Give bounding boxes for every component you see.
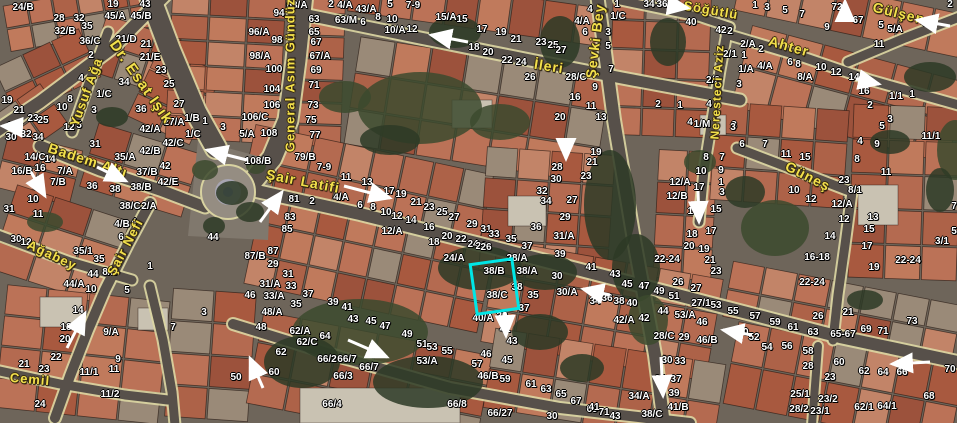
address-label: 2 — [727, 27, 733, 37]
address-label: 19 — [698, 245, 709, 255]
address-label: 59 — [769, 318, 780, 328]
address-label: 71 — [308, 81, 319, 91]
address-label: 30 — [661, 356, 672, 366]
address-label: 3 — [201, 308, 207, 318]
address-label: 33/A — [263, 292, 284, 302]
address-label: 31 — [3, 205, 14, 215]
address-label: 12/A — [669, 178, 690, 188]
address-label: 3 — [220, 123, 226, 133]
address-label: 67 — [570, 397, 581, 407]
address-label: 25 — [163, 80, 174, 90]
address-label: 17 — [705, 227, 716, 237]
address-label: 21 — [510, 35, 521, 45]
address-label: 70 — [944, 365, 955, 375]
address-label: 7 — [170, 323, 176, 333]
address-label: 14 — [72, 306, 83, 316]
address-label: 68 — [923, 392, 934, 402]
address-label: 21 — [410, 198, 421, 208]
address-label: 53 — [710, 301, 721, 311]
address-label: 4/A — [757, 62, 773, 72]
street-name-label: Cemil — [9, 371, 50, 387]
address-label: 20 — [59, 335, 70, 345]
address-label: 26 — [480, 243, 491, 253]
address-label: 64 — [319, 332, 330, 342]
address-label: 10/A — [384, 26, 405, 36]
address-label: 29 — [559, 213, 570, 223]
address-label: 29 — [466, 220, 477, 230]
address-label: 23/2 — [818, 395, 837, 405]
address-label: 24 — [515, 58, 526, 68]
address-label: 65-67 — [830, 330, 856, 340]
address-label: 12/A — [831, 200, 852, 210]
address-label: 17 — [476, 25, 487, 35]
address-label: 28 — [53, 14, 64, 24]
address-label: 35 — [527, 291, 538, 301]
address-label: 19 — [395, 190, 406, 200]
address-label: 10 — [27, 195, 38, 205]
address-label: 18 — [60, 323, 71, 333]
address-label: 9 — [824, 23, 830, 33]
address-label: 71 — [598, 408, 609, 418]
address-label: 49 — [653, 287, 664, 297]
address-label: 8 — [854, 155, 860, 165]
address-label: 15/A — [435, 13, 456, 23]
address-label: 98 — [271, 36, 282, 46]
address-label: 24/A — [443, 254, 464, 264]
street-name-label: Ahter — [767, 34, 811, 59]
address-label: 27 — [173, 100, 184, 110]
address-label: 8 — [703, 153, 709, 163]
address-label: 3 — [730, 123, 736, 133]
address-label: 5 — [879, 122, 885, 132]
address-label: 47 — [638, 282, 649, 292]
address-label: 36 — [530, 223, 541, 233]
address-label: 69 — [310, 66, 321, 76]
address-label: 21 — [586, 158, 597, 168]
address-label: 24 — [34, 400, 45, 410]
address-label: 6 — [360, 18, 366, 28]
address-label: 104 — [264, 85, 281, 95]
address-label: 63 — [807, 328, 818, 338]
address-label: 85 — [281, 225, 292, 235]
address-label: 21 — [140, 40, 151, 50]
address-label: 69 — [860, 325, 871, 335]
address-label: 34 — [643, 0, 654, 10]
address-label: 17 — [383, 187, 394, 197]
address-label: 46 — [696, 318, 707, 328]
address-label: 8/A — [797, 73, 813, 83]
address-label: 57 — [749, 312, 760, 322]
address-label: 64 — [877, 368, 888, 378]
street-name-label: İleri — [533, 57, 565, 76]
address-label: 5 — [387, 0, 393, 10]
address-label: 28 — [802, 362, 813, 372]
address-label: 17 — [693, 183, 704, 193]
address-label: 65 — [555, 390, 566, 400]
address-label: 8 — [375, 13, 381, 23]
address-label: 21 — [13, 106, 24, 116]
address-label: 12/B — [666, 192, 687, 202]
address-label: 59 — [499, 375, 510, 385]
address-label: 87 — [267, 247, 278, 257]
address-label: 2 — [947, 0, 953, 10]
address-label: 8 — [370, 203, 376, 213]
address-label: 35 — [81, 22, 92, 32]
address-label: 50 — [230, 373, 241, 383]
address-label: 66/2 — [317, 355, 336, 365]
address-label: 12 — [805, 195, 816, 205]
address-label: 10 — [695, 167, 706, 177]
address-label: 34 — [540, 197, 551, 207]
address-label: 12 — [830, 68, 841, 78]
address-label: 22 — [501, 56, 512, 66]
address-label: 56 — [781, 342, 792, 352]
address-label: 10 — [815, 63, 826, 73]
address-label: 5 — [878, 21, 884, 31]
address-label: 81 — [288, 195, 299, 205]
address-label: 44 — [87, 270, 98, 280]
address-label: 39 — [668, 389, 679, 399]
address-label: 30/A — [556, 288, 577, 298]
address-label: 57 — [471, 360, 482, 370]
address-label: 7 — [608, 65, 614, 75]
address-label: 5/A — [887, 25, 903, 35]
address-label: 27/1 — [691, 299, 710, 309]
address-label: 38 — [613, 297, 624, 307]
address-label: 7 — [719, 153, 725, 163]
address-label: 24/B — [12, 3, 33, 13]
address-label: 23 — [155, 66, 166, 76]
address-label: 9/A — [103, 328, 119, 338]
address-label: 7 — [799, 10, 805, 20]
address-label: 43/A — [355, 5, 376, 15]
address-label: 27 — [555, 46, 566, 56]
address-label: 72 — [831, 3, 842, 13]
address-label: 31/A — [553, 232, 574, 242]
address-label: 11 — [341, 173, 352, 183]
address-label: 5 — [782, 6, 788, 16]
selected-parcel-highlight[interactable] — [469, 257, 521, 316]
address-label: 3/1 — [935, 237, 949, 247]
address-label: 35 — [93, 255, 104, 265]
address-label: 2/A — [141, 202, 157, 212]
address-label: 1 — [147, 262, 153, 272]
address-label: 5/A — [239, 130, 255, 140]
address-label: 2/A — [740, 40, 756, 50]
address-label: 1/B — [184, 114, 200, 124]
address-label: 29 — [267, 260, 278, 270]
address-label: 4 — [687, 118, 693, 128]
address-label: 41 — [341, 303, 352, 313]
address-label: 14 — [405, 216, 416, 226]
address-label: 44/A — [63, 280, 84, 290]
address-label: 51 — [668, 292, 679, 302]
address-label: 12 — [838, 215, 849, 225]
address-label: 63/M — [335, 16, 357, 26]
address-label: 22-24 — [654, 255, 680, 265]
address-label: 50 — [737, 328, 748, 338]
address-label: 15 — [863, 225, 874, 235]
address-label: 17 — [861, 242, 872, 252]
address-label: 75 — [305, 116, 316, 126]
address-label: 1 — [909, 90, 915, 100]
address-label: 4/A — [337, 1, 353, 11]
satellite-map-view[interactable]: 24/B194345/A45/B283232/B3536/C21/D2121/E… — [0, 0, 957, 423]
address-label: 83 — [284, 213, 295, 223]
address-label: 22-24 — [799, 278, 825, 288]
address-label: 33 — [488, 230, 499, 240]
address-label: 2 — [867, 101, 873, 111]
address-label: 11 — [881, 168, 892, 178]
address-label: 13 — [867, 213, 878, 223]
address-label: 34 — [32, 133, 43, 143]
address-label: 108 — [261, 129, 278, 139]
address-label: 18 — [428, 238, 439, 248]
address-label: 44 — [207, 233, 218, 243]
address-label: 63 — [308, 15, 319, 25]
address-label: 2 — [328, 0, 334, 10]
address-label: 1 — [614, 0, 620, 10]
address-label: 53/A — [674, 311, 695, 321]
address-label: 38/C — [119, 202, 140, 212]
address-label: 36/C — [79, 37, 100, 47]
address-label: 30 — [550, 175, 561, 185]
address-label: 35 — [505, 235, 516, 245]
address-label: 73 — [307, 101, 318, 111]
address-label: 27 — [690, 284, 701, 294]
address-label: 46/B — [477, 372, 498, 382]
address-label: 106/C — [242, 113, 269, 123]
address-label: 63 — [540, 385, 551, 395]
address-label: 71 — [877, 327, 888, 337]
address-label: 33 — [674, 357, 685, 367]
address-label: 3 — [764, 3, 770, 13]
address-label: 2 — [758, 45, 764, 55]
address-label: 16 — [858, 87, 869, 97]
address-label: 7 — [762, 140, 768, 150]
address-label: 41/B — [667, 403, 688, 413]
street-name-label: General Asım Gündüz — [284, 0, 297, 152]
address-label: 29 — [678, 333, 689, 343]
address-label: 42 — [715, 26, 726, 36]
address-label: 38/B — [130, 183, 151, 193]
address-label: 37/B — [136, 168, 157, 178]
address-label: 27 — [566, 196, 577, 206]
address-label: 66/7 — [359, 363, 378, 373]
address-label: 66/7 — [337, 355, 356, 365]
address-label: 34 — [589, 297, 600, 307]
address-label: 6 — [739, 140, 745, 150]
street-name-label: Neresteci Aziz — [709, 44, 726, 139]
address-labels-layer: 24/B194345/A45/B283232/B3536/C21/D2121/E… — [0, 0, 957, 423]
address-label: 10 — [386, 15, 397, 25]
address-label: 9 — [592, 83, 598, 93]
address-label: 1/C — [610, 12, 626, 22]
address-label: 21 — [704, 256, 715, 266]
address-label: 3 — [736, 80, 742, 90]
address-label: 1 — [752, 1, 758, 11]
address-label: 13 — [595, 113, 606, 123]
address-label: 2 — [309, 197, 315, 207]
address-label: 40 — [626, 299, 637, 309]
address-label: 48 — [255, 323, 266, 333]
address-label: 12/A — [381, 227, 402, 237]
address-label: 19 — [868, 263, 879, 273]
address-label: 66/4 — [322, 400, 341, 410]
address-label: 28/2 — [789, 405, 808, 415]
address-label: 53 — [426, 343, 437, 353]
address-label: 43 — [506, 337, 517, 347]
address-label: 60 — [833, 358, 844, 368]
address-label: 38/A — [516, 267, 537, 277]
address-label: 61 — [525, 380, 536, 390]
address-label: 39 — [496, 312, 507, 322]
address-label: 37 — [521, 242, 532, 252]
address-label: 45/B — [130, 12, 151, 22]
address-label: 54 — [761, 343, 772, 353]
address-label: 5 — [605, 42, 611, 52]
address-label: 22 — [50, 353, 61, 363]
address-label: 62/1 — [854, 403, 873, 413]
address-label: 21 — [18, 360, 29, 370]
address-label: 5 — [124, 286, 130, 296]
address-label: 9 — [718, 166, 724, 176]
address-label: 98/A — [249, 52, 270, 62]
address-label: 3 — [605, 28, 611, 38]
address-label: 23/1 — [810, 407, 829, 417]
address-label: 62 — [275, 348, 286, 358]
address-label: 9 — [874, 140, 880, 150]
address-label: 42/A — [613, 316, 634, 326]
address-label: 16 — [687, 207, 698, 217]
address-label: 23 — [535, 38, 546, 48]
address-label: 22-24 — [895, 256, 921, 266]
address-label: 52 — [748, 333, 759, 343]
address-label: 22 — [455, 235, 466, 245]
address-label: 67/A — [309, 52, 330, 62]
address-label: 62 — [858, 367, 869, 377]
address-label: 46 — [244, 291, 255, 301]
address-label: 53/A — [416, 357, 437, 367]
address-label: 23 — [580, 172, 591, 182]
address-label: 14 — [848, 73, 859, 83]
address-label: 87/B — [244, 252, 265, 262]
address-label: 55 — [727, 307, 738, 317]
address-label: 66 — [896, 368, 907, 378]
address-label: 7-9 — [406, 1, 420, 11]
address-label: 106 — [264, 101, 281, 111]
address-label: 8 — [795, 60, 801, 70]
address-label: 1 — [741, 51, 747, 61]
address-label: 5 — [951, 227, 957, 237]
address-label: 27 — [448, 213, 459, 223]
address-label: 3 — [887, 115, 893, 125]
address-label: 44 — [657, 307, 668, 317]
address-label: 34/A — [628, 392, 649, 402]
address-label: 36 — [656, 0, 667, 10]
address-label: 25 — [436, 208, 447, 218]
address-label: 11 — [33, 210, 44, 220]
address-label: 41 — [585, 263, 596, 273]
address-label: 1 — [202, 117, 208, 127]
address-label: 60 — [268, 368, 279, 378]
address-label: 14 — [824, 232, 835, 242]
address-label: 20 — [441, 232, 452, 242]
address-label: 37 — [654, 375, 665, 385]
address-label: 12 — [406, 25, 417, 35]
address-label: 3 — [91, 106, 97, 116]
address-label: 25/1 — [790, 390, 809, 400]
address-label: 66/27 — [487, 409, 512, 419]
address-label: 26 — [812, 312, 823, 322]
address-label: 11/2 — [101, 390, 120, 400]
address-label: 1/C — [96, 90, 112, 100]
address-label: 31/A — [259, 280, 280, 290]
address-label: 37 — [302, 290, 313, 300]
address-label: 42/B — [139, 147, 160, 157]
address-label: 21 — [842, 308, 853, 318]
address-label: 35/1 — [73, 247, 92, 257]
address-label: 31 — [282, 270, 293, 280]
address-label: 49 — [401, 330, 412, 340]
street-name-label: Ağabey — [25, 238, 79, 272]
address-label: 30 — [5, 133, 16, 143]
address-label: 62/C — [296, 338, 317, 348]
address-label: 66/8 — [447, 400, 466, 410]
address-label: 39 — [327, 298, 338, 308]
address-label: 7/A — [57, 167, 73, 177]
address-label: 58 — [802, 347, 813, 357]
address-label: 15 — [456, 15, 467, 25]
address-label: 30 — [546, 412, 557, 422]
address-label: 42/A — [139, 125, 160, 135]
address-label: 55 — [441, 347, 452, 357]
address-label: 23 — [710, 267, 721, 277]
address-label: 25 — [37, 116, 48, 126]
address-label: 45 — [365, 317, 376, 327]
address-label: 32 — [20, 130, 31, 140]
address-label: 21/E — [140, 53, 161, 63]
address-label: 20 — [482, 48, 493, 58]
address-label: 8/1 — [848, 186, 862, 196]
address-label: 20 — [683, 242, 694, 252]
address-label: 16-18 — [804, 253, 830, 263]
address-label: 36 — [86, 182, 97, 192]
address-label: 38/C — [641, 410, 662, 420]
address-label: 6 — [357, 201, 363, 211]
address-label: 16 — [423, 223, 434, 233]
address-label: 43 — [139, 0, 150, 10]
address-label: 67 — [852, 16, 863, 26]
address-label: 15 — [799, 153, 810, 163]
address-label: 20 — [554, 113, 565, 123]
address-label: 47 — [379, 322, 390, 332]
address-label: 41 — [499, 325, 510, 335]
address-label: 45/A — [104, 12, 125, 22]
address-label: 40 — [685, 18, 696, 28]
address-label: 13 — [361, 178, 372, 188]
address-label: 16/B — [11, 167, 32, 177]
address-label: 19 — [590, 148, 601, 158]
address-label: 28 — [551, 163, 562, 173]
address-label: 11 — [874, 40, 885, 50]
address-label: 8 — [67, 95, 73, 105]
address-label: 10 — [56, 103, 67, 113]
address-label: 43 — [609, 270, 620, 280]
address-label: 31 — [89, 140, 100, 150]
address-label: 19 — [107, 0, 118, 10]
address-label: 48/A — [261, 308, 282, 318]
